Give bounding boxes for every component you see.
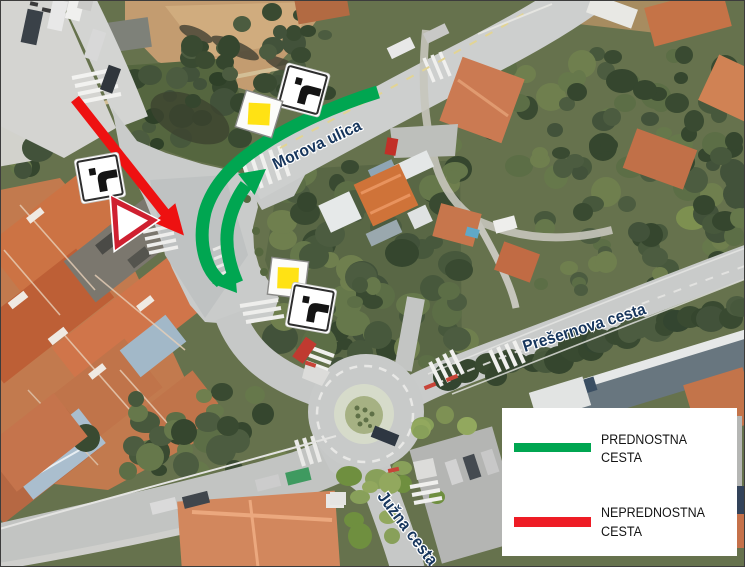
- svg-text:NEPREDNOSTNA: NEPREDNOSTNA: [601, 505, 705, 520]
- svg-text:CESTA: CESTA: [601, 524, 642, 539]
- svg-text:PREDNOSTNA: PREDNOSTNA: [601, 432, 687, 447]
- svg-text:CESTA: CESTA: [601, 450, 642, 465]
